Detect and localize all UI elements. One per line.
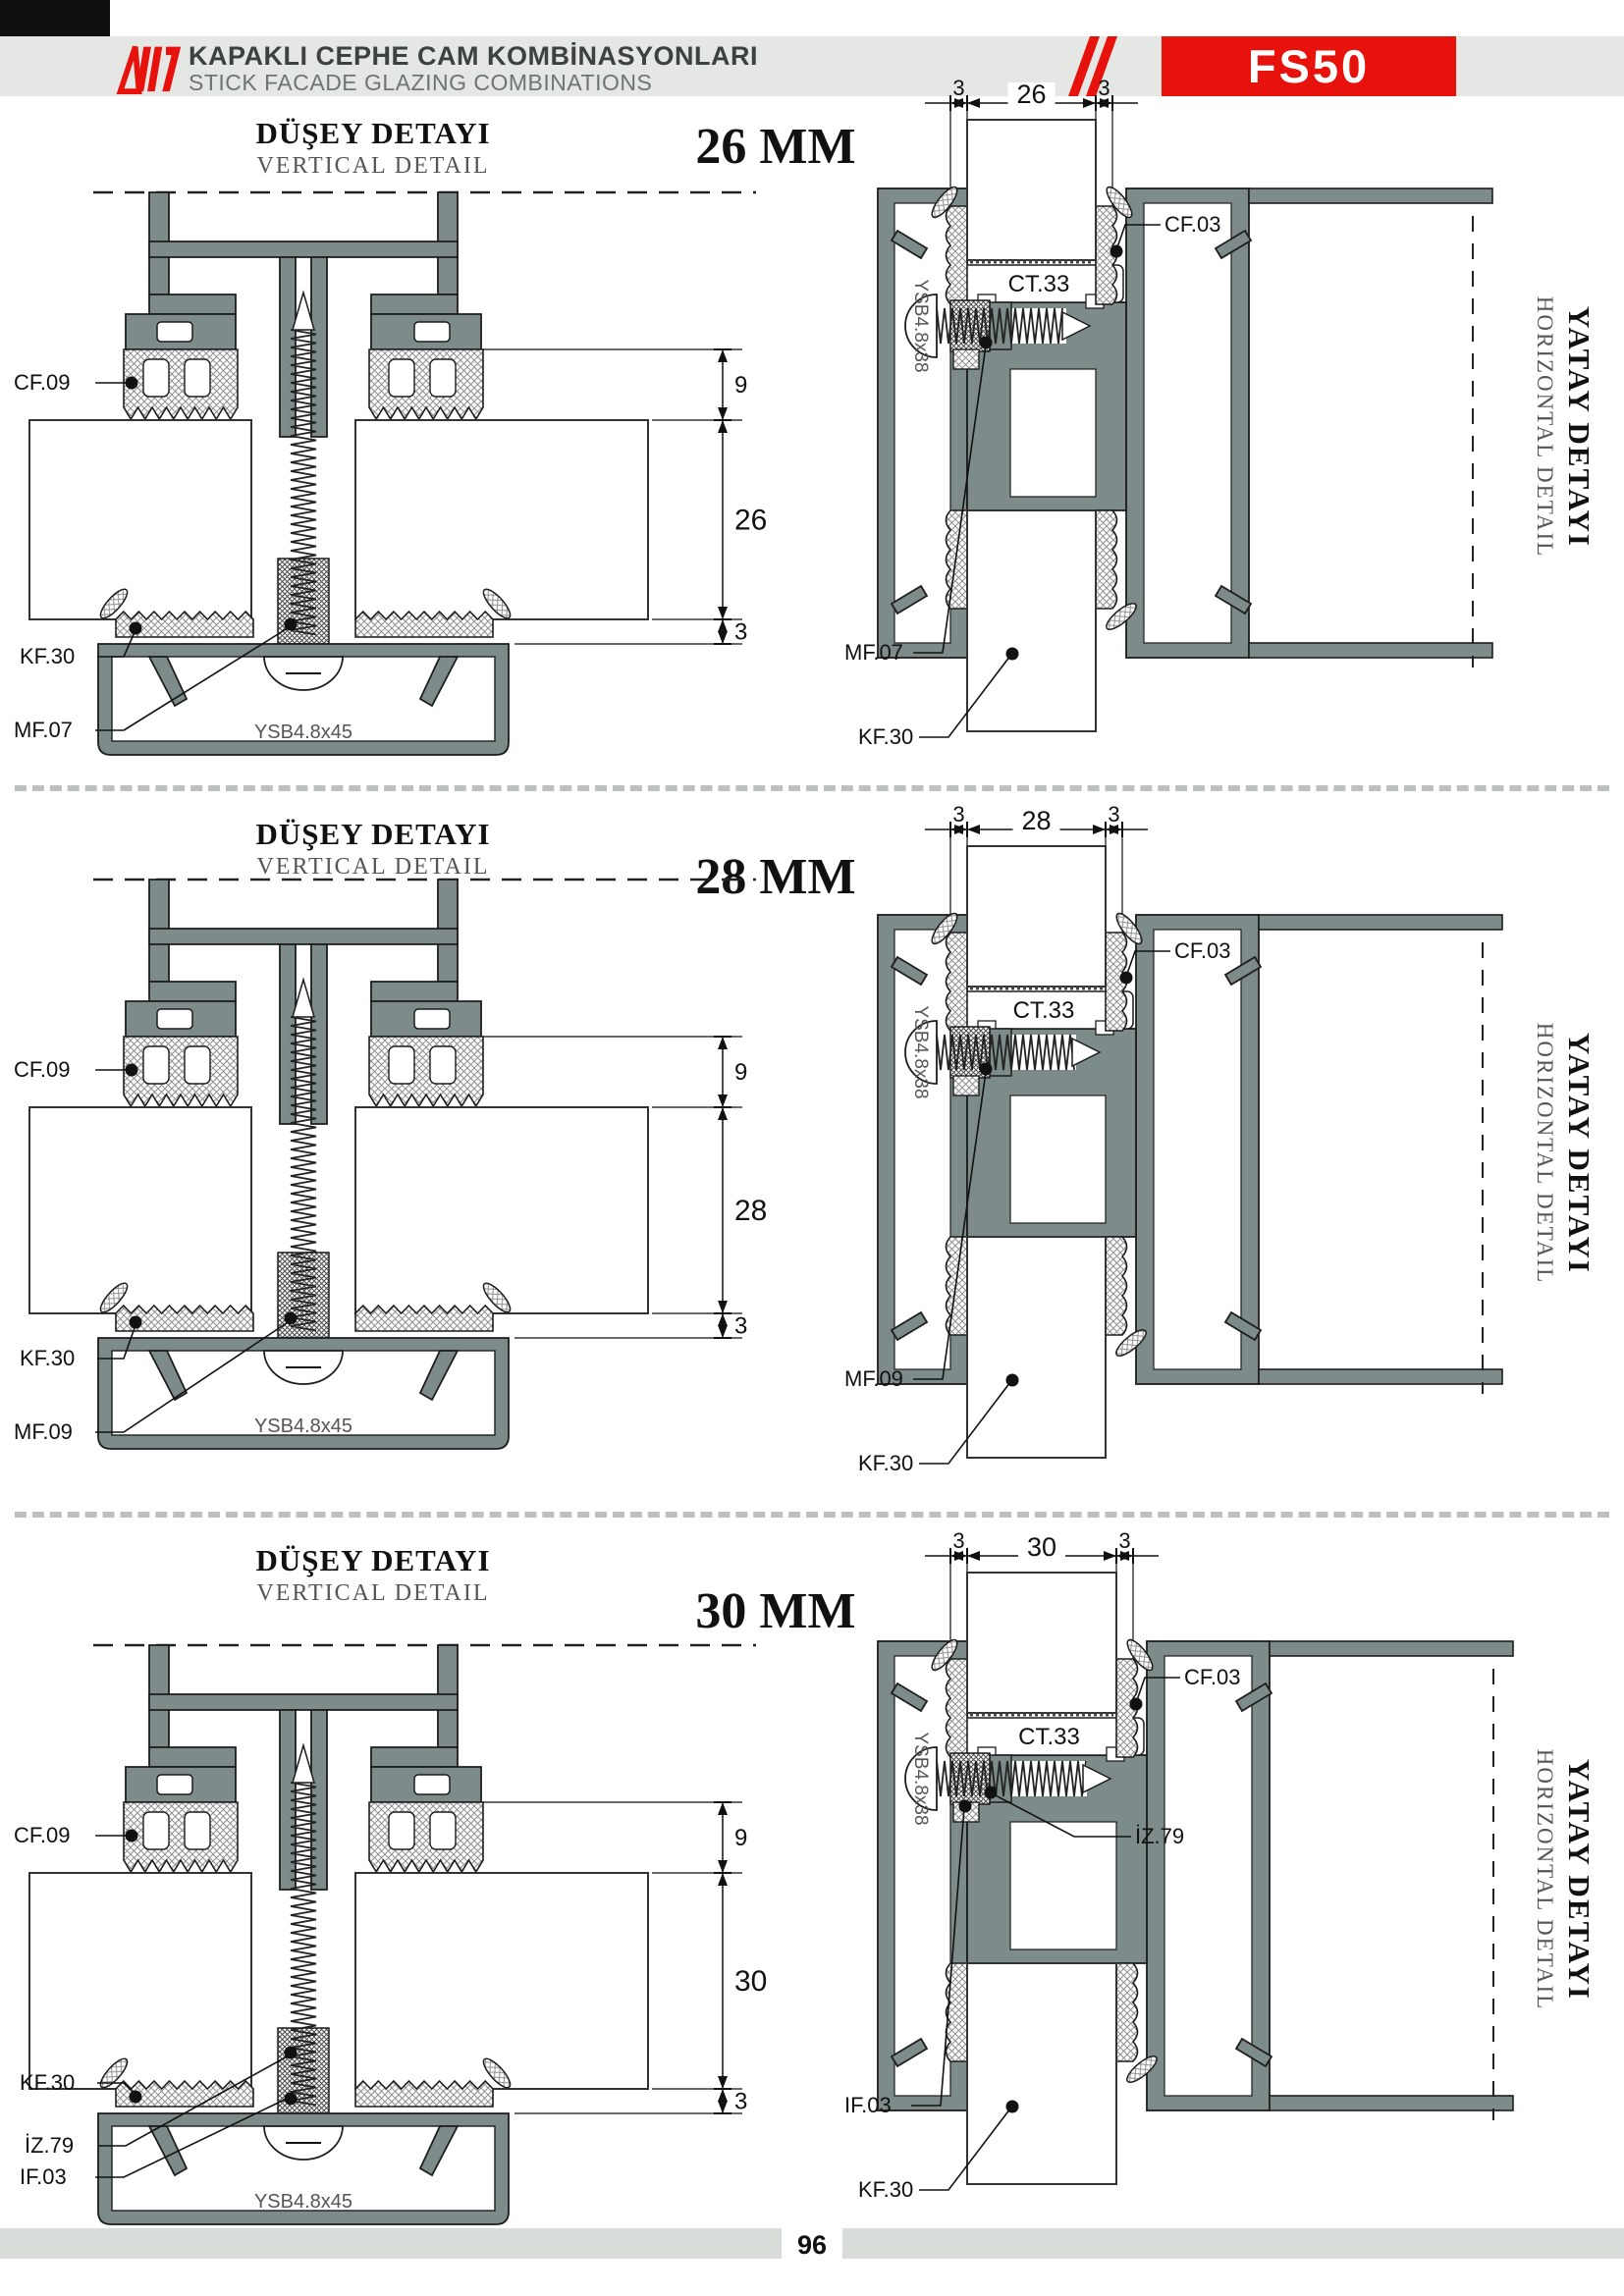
svg-text:MF.07: MF.07: [844, 640, 903, 665]
svg-text:26: 26: [734, 505, 767, 537]
page-number: 96: [782, 2230, 842, 2261]
svg-text:IF.03: IF.03: [20, 2164, 67, 2189]
company-logo: [114, 40, 183, 94]
svg-text:MF.09: MF.09: [14, 1419, 73, 1444]
svg-text:9: 9: [734, 1059, 747, 1086]
section-separator: [15, 785, 1609, 791]
svg-text:3: 3: [952, 802, 964, 827]
svg-text:YSB4.8x38: YSB4.8x38: [910, 279, 931, 372]
svg-text:26: 26: [1016, 80, 1046, 109]
svg-text:CT.33: CT.33: [1013, 997, 1075, 1024]
svg-text:3: 3: [734, 2089, 747, 2115]
svg-text:HORIZONTAL DETAIL: HORIZONTAL DETAIL: [1533, 296, 1557, 558]
svg-text:HORIZONTAL DETAIL: HORIZONTAL DETAIL: [1533, 1749, 1557, 2010]
svg-text:KF.30: KF.30: [858, 2177, 913, 2202]
svg-text:KF.30: KF.30: [20, 1346, 75, 1370]
header-title-turkish: KAPAKLI CEPHE CAM KOMBİNASYONLARI: [189, 41, 758, 72]
horizontal-detail-drawing-30mm: 3303CT.33YSB4.8x38YATAY DETAYIHORIZONTAL…: [839, 1512, 1624, 2218]
svg-text:CF.09: CF.09: [14, 1823, 70, 1847]
svg-text:MF.07: MF.07: [14, 718, 73, 742]
svg-text:3: 3: [1118, 1528, 1130, 1553]
svg-text:YATAY DETAYI: YATAY DETAYI: [1562, 1759, 1597, 2001]
catalog-page: KAPAKLI CEPHE CAM KOMBİNASYONLARI STICK …: [0, 0, 1624, 2296]
header-title-english: STICK FACADE GLAZING COMBINATIONS: [189, 70, 652, 96]
svg-text:YSB4.8x38: YSB4.8x38: [910, 1732, 931, 1825]
svg-text:CT.33: CT.33: [1008, 271, 1070, 297]
horizontal-detail-drawing-28mm: 3283CT.33YSB4.8x38YATAY DETAYIHORIZONTAL…: [839, 785, 1624, 1492]
svg-text:CT.33: CT.33: [1018, 1724, 1080, 1750]
svg-text:9: 9: [734, 372, 747, 399]
vertical-detail-drawing-28mm: YSB4.8x459283CF.09KF.30MF.09: [0, 834, 785, 1482]
svg-text:YATAY DETAYI: YATAY DETAYI: [1562, 1033, 1597, 1274]
svg-text:CF.03: CF.03: [1174, 938, 1230, 963]
svg-text:CF.09: CF.09: [14, 370, 70, 395]
svg-text:3: 3: [1098, 76, 1110, 100]
svg-text:3: 3: [952, 76, 964, 100]
svg-text:28: 28: [734, 1195, 767, 1227]
svg-text:İZ.79: İZ.79: [1135, 1824, 1184, 1848]
vertical-detail-drawing-26mm: YSB4.8x459263CF.09KF.30MF.07: [0, 147, 785, 795]
svg-text:3: 3: [952, 1528, 964, 1553]
svg-text:MF.09: MF.09: [844, 1366, 903, 1391]
svg-text:28: 28: [1021, 806, 1051, 835]
svg-text:30: 30: [1027, 1532, 1056, 1562]
svg-text:9: 9: [734, 1825, 747, 1851]
svg-text:CF.03: CF.03: [1164, 212, 1220, 237]
section-separator: [15, 1512, 1609, 1518]
svg-text:YSB4.8x45: YSB4.8x45: [254, 1415, 352, 1437]
svg-text:30: 30: [734, 1965, 767, 1998]
svg-text:CF.09: CF.09: [14, 1057, 70, 1082]
svg-text:YSB4.8x45: YSB4.8x45: [254, 2191, 352, 2213]
svg-text:HORIZONTAL DETAIL: HORIZONTAL DETAIL: [1533, 1023, 1557, 1284]
title-dusey-detayi: DÜŞEY DETAYI: [128, 116, 619, 151]
svg-text:İZ.79: İZ.79: [25, 2133, 74, 2158]
svg-text:IF.03: IF.03: [844, 2093, 892, 2117]
svg-text:KF.30: KF.30: [858, 1451, 913, 1475]
svg-text:KF.30: KF.30: [20, 644, 75, 668]
section-title-vertical-30: DÜŞEY DETAYI VERTICAL DETAIL: [128, 1543, 619, 1607]
top-corner-bar: [0, 0, 110, 36]
svg-text:YATAY DETAYI: YATAY DETAYI: [1562, 306, 1597, 548]
title-dusey-detayi: DÜŞEY DETAYI: [128, 1543, 619, 1578]
svg-text:YSB4.8x45: YSB4.8x45: [254, 721, 352, 743]
svg-text:CF.03: CF.03: [1184, 1665, 1240, 1689]
horizontal-detail-drawing-26mm: 3263CT.33YSB4.8x38YATAY DETAYIHORIZONTAL…: [839, 59, 1624, 766]
svg-text:3: 3: [734, 1313, 747, 1340]
vertical-detail-drawing-30mm: YSB4.8x459303CF.09KF.30İZ.79IF.03: [0, 1600, 785, 2248]
svg-text:KF.30: KF.30: [858, 724, 913, 749]
svg-text:YSB4.8x38: YSB4.8x38: [910, 1005, 931, 1098]
svg-text:KF.30: KF.30: [20, 2070, 75, 2095]
svg-text:3: 3: [734, 619, 747, 646]
svg-text:3: 3: [1108, 802, 1119, 827]
